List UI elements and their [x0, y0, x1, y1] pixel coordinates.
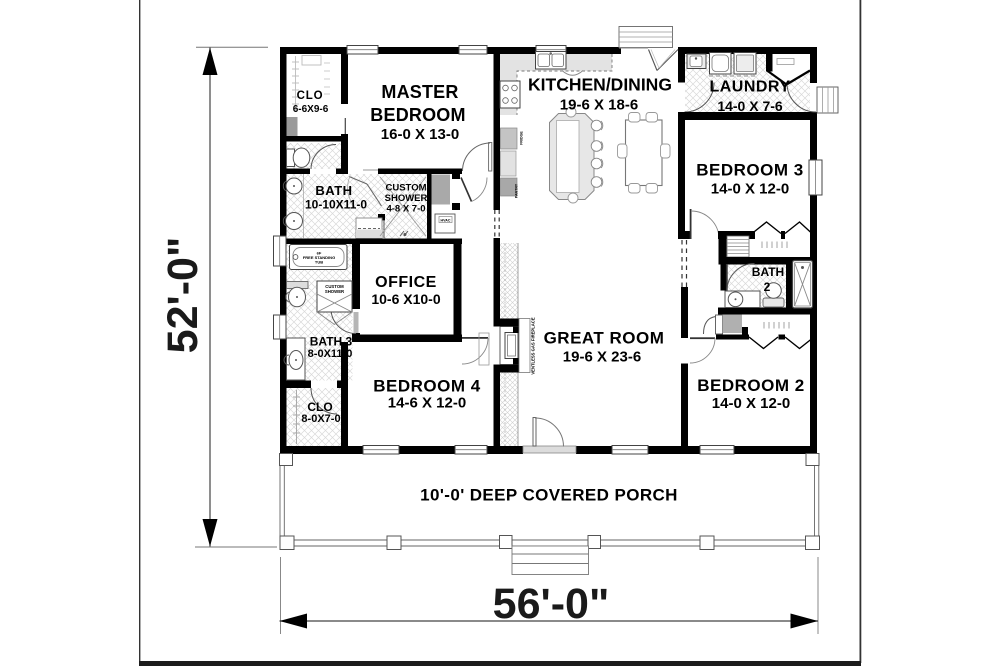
svg-text:BATH: BATH: [752, 265, 784, 279]
svg-text:PANTRY: PANTRY: [515, 183, 519, 198]
svg-text:KITCHEN/DINING: KITCHEN/DINING: [528, 75, 672, 95]
svg-text:CLO: CLO: [297, 90, 324, 102]
svg-text:10-6 X10-0: 10-6 X10-0: [371, 291, 440, 307]
svg-text:56'-0": 56'-0": [493, 580, 610, 628]
svg-text:14-6 X 12-0: 14-6 X 12-0: [388, 395, 466, 412]
svg-text:BEDROOM 3: BEDROOM 3: [696, 161, 803, 180]
svg-text:16-0 X 13-0: 16-0 X 13-0: [381, 126, 459, 143]
svg-text:SHOWER: SHOWER: [385, 193, 428, 204]
svg-text:BATH 3: BATH 3: [310, 335, 353, 349]
svg-text:19-6 X 18-6: 19-6 X 18-6: [560, 97, 638, 114]
svg-text:GREAT ROOM: GREAT ROOM: [544, 329, 665, 348]
svg-text:4-8 X 7-0: 4-8 X 7-0: [386, 204, 425, 215]
svg-text:2: 2: [764, 280, 771, 294]
svg-text:BEDROOM: BEDROOM: [370, 105, 465, 125]
svg-text:10-10X11-0: 10-10X11-0: [305, 198, 367, 212]
svg-text:FRIDGE: FRIDGE: [520, 131, 524, 145]
svg-text:BEDROOM 2: BEDROOM 2: [697, 376, 804, 395]
svg-text:CLO: CLO: [307, 400, 332, 414]
svg-text:HVAC: HVAC: [441, 219, 451, 223]
svg-text:52'-0": 52'-0": [159, 237, 207, 354]
svg-text:8-0X7-0: 8-0X7-0: [301, 413, 340, 425]
svg-text:BATH: BATH: [315, 183, 352, 198]
svg-text:TUB: TUB: [315, 260, 323, 265]
svg-text:8-0X11-0: 8-0X11-0: [308, 348, 353, 360]
svg-text:CUSTOM: CUSTOM: [386, 183, 427, 194]
svg-text:14-0 X 12-0: 14-0 X 12-0: [711, 181, 789, 198]
svg-text:14-0 X 12-0: 14-0 X 12-0: [712, 395, 790, 412]
svg-text:BEDROOM 4: BEDROOM 4: [373, 377, 481, 396]
svg-text:OFFICE: OFFICE: [375, 274, 437, 291]
svg-text:19-6 X 23-6: 19-6 X 23-6: [563, 349, 641, 366]
svg-text:10'-0' DEEP COVERED PORCH: 10'-0' DEEP COVERED PORCH: [420, 486, 678, 505]
svg-text:14-0 X 7-6: 14-0 X 7-6: [717, 98, 783, 114]
svg-text:LAUNDRY: LAUNDRY: [709, 79, 790, 96]
svg-text:MASTER: MASTER: [381, 82, 458, 102]
svg-text:SHOWER: SHOWER: [325, 289, 345, 294]
svg-text:6-6X9-6: 6-6X9-6: [293, 104, 329, 115]
svg-text:VENTLESS GAS FIREPLACE: VENTLESS GAS FIREPLACE: [531, 317, 536, 374]
